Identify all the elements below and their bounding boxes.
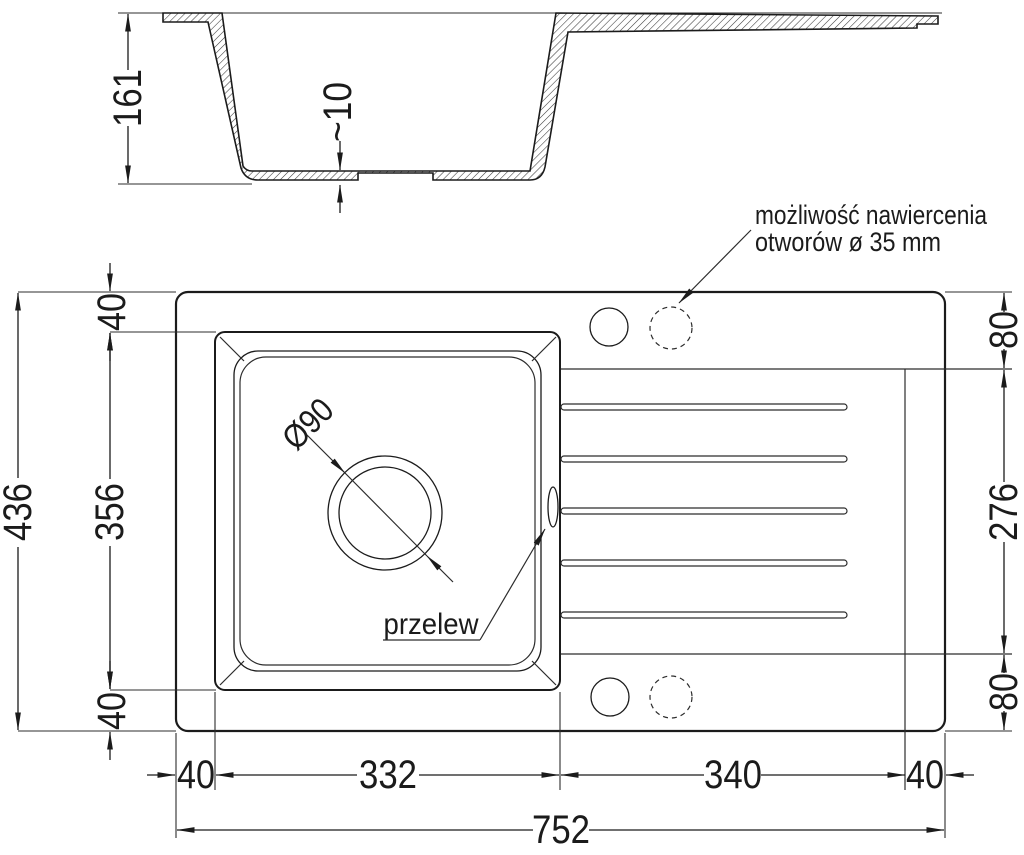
background bbox=[0, 0, 1024, 855]
dim-label-436: 436 bbox=[0, 483, 40, 541]
dim-label-40-right: 40 bbox=[906, 753, 944, 797]
dim-label-356: 356 bbox=[88, 483, 132, 541]
drawing-svg: 161 ~10 Ø90 bbox=[0, 0, 1024, 855]
dim-label-161: 161 bbox=[106, 69, 150, 127]
dim-label-40-left: 40 bbox=[177, 753, 215, 797]
dim-label-10: ~10 bbox=[316, 82, 360, 142]
sink-technical-drawing: 161 ~10 Ø90 bbox=[0, 0, 1024, 855]
dim-label-80-bottom: 80 bbox=[982, 673, 1024, 711]
dim-label-752: 752 bbox=[532, 808, 590, 852]
drill-note-line1: możliwość nawiercenia bbox=[755, 200, 988, 230]
dim-label-80-top: 80 bbox=[982, 311, 1024, 349]
dim-label-40-bottom: 40 bbox=[90, 692, 134, 730]
dim-label-332: 332 bbox=[359, 753, 417, 797]
dim-label-40-top: 40 bbox=[90, 293, 134, 331]
overflow-label: przelew bbox=[384, 608, 479, 641]
dim-label-340: 340 bbox=[704, 753, 762, 797]
drill-note-line2: otworów ø 35 mm bbox=[755, 227, 941, 257]
dim-label-276: 276 bbox=[982, 483, 1024, 541]
